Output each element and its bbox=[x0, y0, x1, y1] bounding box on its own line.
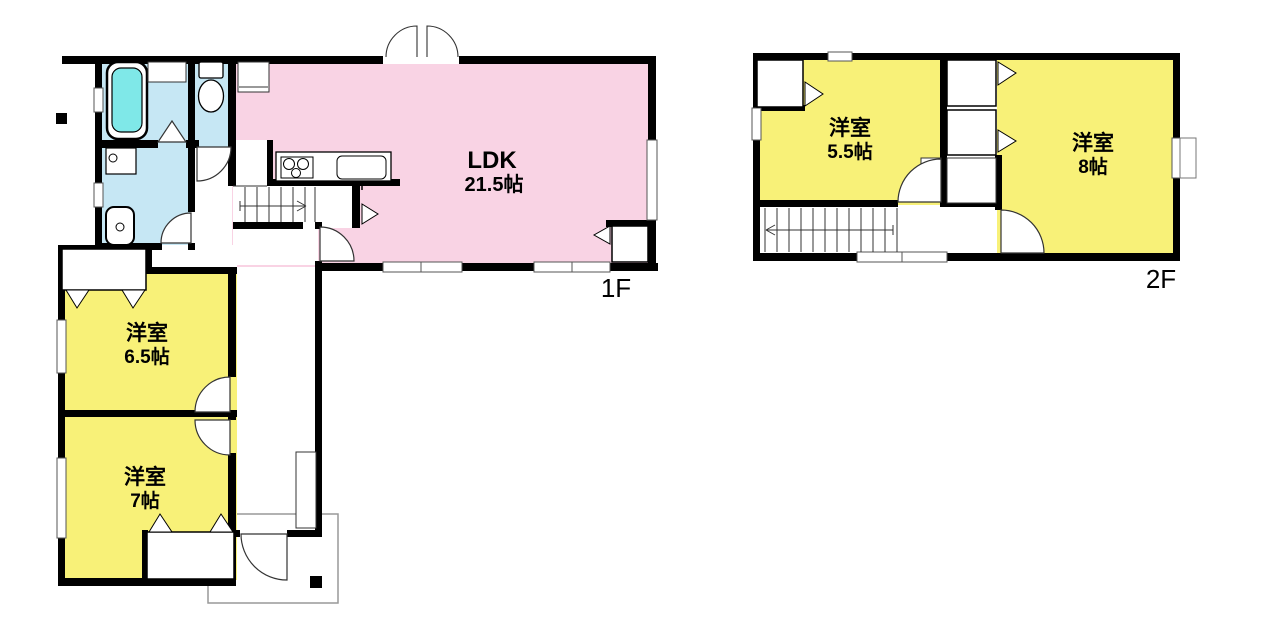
floor-plan-page: LDK 21.5帖 洋室 6.5帖 洋室 7帖 1F bbox=[0, 0, 1280, 631]
stairs-2f bbox=[765, 208, 897, 252]
ldk-storage bbox=[612, 226, 648, 262]
room-6-5-name-label: 洋室 bbox=[126, 321, 168, 345]
pillar-marker bbox=[56, 113, 67, 124]
closet-6-5 bbox=[62, 249, 146, 290]
ldk-double-door bbox=[383, 26, 459, 64]
room-8-name-label: 洋室 bbox=[1072, 131, 1114, 155]
closet-5-5 bbox=[757, 60, 803, 107]
floor-plan-2f: 洋室 5.5帖 洋室 8帖 2F bbox=[752, 52, 1196, 294]
ldk-name-label: LDK bbox=[467, 147, 517, 174]
toilet-door bbox=[197, 147, 231, 181]
shoe-cabinet bbox=[296, 452, 316, 528]
floor-1f-label: 1F bbox=[601, 273, 631, 303]
room-6-5-size-label: 6.5帖 bbox=[124, 345, 169, 368]
washer-drain bbox=[116, 223, 124, 231]
washbasin-bowl bbox=[109, 154, 117, 162]
room-8-size-label: 8帖 bbox=[1078, 155, 1108, 178]
hall-storage bbox=[947, 158, 996, 203]
stairs-down-arrow bbox=[766, 225, 893, 235]
room-7-name-label: 洋室 bbox=[124, 465, 166, 489]
toilet-bowl bbox=[199, 80, 224, 112]
bath-counter bbox=[148, 62, 186, 82]
floor-2f-label: 2F bbox=[1146, 264, 1176, 294]
room-5-5-size-label: 5.5帖 bbox=[827, 140, 872, 163]
floor-plan-1f: LDK 21.5帖 洋室 6.5帖 洋室 7帖 1F bbox=[56, 26, 658, 603]
bathtub-basin bbox=[112, 68, 142, 132]
pillar-marker bbox=[310, 576, 322, 588]
kitchen-sink bbox=[337, 156, 386, 179]
toilet-tank bbox=[199, 62, 223, 78]
closet-8-upper bbox=[947, 60, 996, 106]
lower-hall bbox=[233, 228, 318, 265]
floor-plan-drawing: LDK 21.5帖 洋室 6.5帖 洋室 7帖 1F bbox=[0, 0, 1280, 631]
room-7-size-label: 7帖 bbox=[130, 489, 160, 512]
room-5-5-name-label: 洋室 bbox=[829, 116, 871, 140]
closet-7 bbox=[147, 532, 234, 579]
ldk-size-label: 21.5帖 bbox=[465, 173, 524, 196]
closet-8-lower bbox=[947, 110, 996, 155]
